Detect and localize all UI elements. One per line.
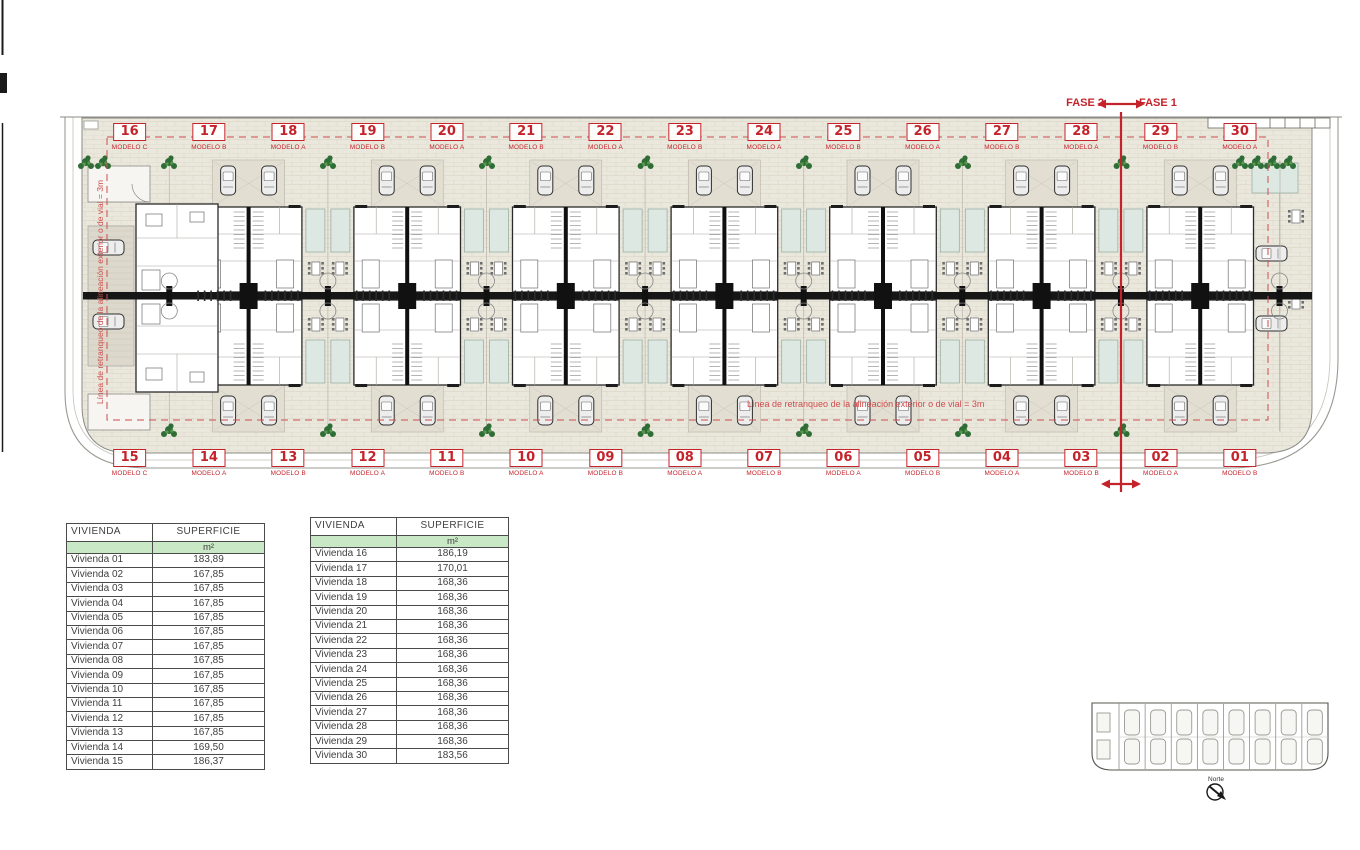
superficie-cell: 167,85 [153, 697, 265, 711]
vivienda-cell: Vivienda 26 [311, 691, 397, 705]
patio-table-icon [942, 262, 958, 275]
superficie-cell: 167,85 [153, 568, 265, 582]
superficie-cell: 167,85 [153, 625, 265, 639]
vivienda-cell: Vivienda 23 [311, 648, 397, 662]
unit-model-label: MODELO B [1143, 144, 1178, 151]
vivienda-cell: Vivienda 14 [67, 741, 153, 755]
vivienda-cell: Vivienda 25 [311, 677, 397, 691]
unit-10-badge: 10MODELO A [509, 448, 544, 477]
table-row: Vivienda 09167,85 [67, 669, 265, 683]
vivienda-cell: Vivienda 29 [311, 735, 397, 749]
vivienda-cell: Vivienda 11 [67, 697, 153, 711]
unit-14-badge: 14MODELO A [191, 448, 226, 477]
vivienda-cell: Vivienda 24 [311, 663, 397, 677]
unit-model-label: MODELO A [1064, 144, 1099, 151]
north-label: Norte [1208, 776, 1224, 783]
vivienda-cell: Vivienda 10 [67, 683, 153, 697]
superficie-cell: 168,36 [397, 605, 509, 619]
unit-model-label: MODELO C [112, 144, 148, 151]
patio-table-icon [625, 262, 641, 275]
superficie-cell: 186,37 [153, 755, 265, 769]
superficie-cell: 167,85 [153, 683, 265, 697]
vivienda-cell: Vivienda 09 [67, 669, 153, 683]
unit-number: 29 [1144, 123, 1177, 141]
table-row: Vivienda 08167,85 [67, 654, 265, 668]
unit-16-badge: 16MODELO C [112, 122, 148, 151]
car-icon [262, 166, 277, 195]
unit-number: 14 [192, 449, 225, 467]
unit-number: 21 [510, 123, 543, 141]
unit-model-label: MODELO A [429, 144, 464, 151]
unit-number: 13 [272, 449, 305, 467]
unit-model-label: MODELO A [905, 144, 940, 151]
vivienda-cell: Vivienda 08 [67, 654, 153, 668]
superficie-cell: 167,85 [153, 640, 265, 654]
unit-24-badge: 24MODELO A [747, 122, 782, 151]
vivienda-cell: Vivienda 22 [311, 634, 397, 648]
superficie-cell: 167,85 [153, 597, 265, 611]
unit-number: 06 [827, 449, 860, 467]
unit-model-label: MODELO A [747, 144, 782, 151]
car-icon [1172, 396, 1187, 425]
unit-model-label: MODELO B [1222, 470, 1257, 477]
vivienda-cell: Vivienda 12 [67, 712, 153, 726]
car-icon [1213, 166, 1228, 195]
unit-model-label: MODELO B [826, 144, 861, 151]
unit-row-m2: m² [397, 536, 509, 548]
setback-line-text-vertical: Línea de retranqueo de la alineación ext… [95, 180, 105, 404]
superficie-cell: 168,36 [397, 706, 509, 720]
unit-number: 12 [351, 449, 384, 467]
car-icon [379, 396, 394, 425]
fase-2-label: FASE 2 [1018, 97, 1104, 109]
unit-28-badge: 28MODELO A [1064, 122, 1099, 151]
superficie-cell: 168,36 [397, 576, 509, 590]
unit-model-label: MODELO A [191, 470, 226, 477]
unit-number: 01 [1223, 449, 1256, 467]
unit-03-badge: 03MODELO B [1064, 448, 1099, 477]
table-row: Vivienda 13167,85 [67, 726, 265, 740]
unit-number: 07 [748, 449, 781, 467]
unit-number: 02 [1144, 449, 1177, 467]
unit-18-badge: 18MODELO A [271, 122, 306, 151]
unit-30-badge: 30MODELO A [1222, 122, 1257, 151]
site-plan-sheet: FASE 2 FASE 1 Línea de retranqueo de la … [0, 0, 1360, 850]
unit-model-label: MODELO A [350, 470, 385, 477]
superficie-cell: 183,56 [397, 749, 509, 763]
table-header-superficie: SUPERFICIE [153, 524, 265, 542]
superficie-cell: 168,36 [397, 677, 509, 691]
table-row: Vivienda 15186,37 [67, 755, 265, 769]
unit-17-badge: 17MODELO B [191, 122, 226, 151]
table-row: Vivienda 07167,85 [67, 640, 265, 654]
unit-29-badge: 29MODELO B [1143, 122, 1178, 151]
page-edge-artifacts [0, 0, 7, 452]
unit-05-badge: 05MODELO B [905, 448, 940, 477]
unit-model-label: MODELO B [1064, 470, 1099, 477]
table-row: Vivienda 25168,36 [311, 677, 509, 691]
vivienda-cell: Vivienda 04 [67, 597, 153, 611]
table-row: Vivienda 21168,36 [311, 619, 509, 633]
unit-number: 22 [589, 123, 622, 141]
vivienda-cell: Vivienda 16 [311, 548, 397, 562]
patio-table-icon [332, 262, 348, 275]
superficie-cell: 167,85 [153, 669, 265, 683]
patio-table-icon [1101, 262, 1117, 275]
table-header-vivienda: VIVIENDA [67, 524, 153, 542]
table-row: Vivienda 03167,85 [67, 582, 265, 596]
vivienda-cell: Vivienda 03 [67, 582, 153, 596]
vivienda-cell: Vivienda 27 [311, 706, 397, 720]
unit-model-label: MODELO A [509, 470, 544, 477]
car-icon [1014, 166, 1029, 195]
unit-08-badge: 08MODELO A [667, 448, 702, 477]
car-icon [696, 166, 711, 195]
car-icon [1213, 396, 1228, 425]
patio-table-icon [1125, 318, 1141, 331]
superficie-cell: 170,01 [397, 562, 509, 576]
unit-15-badge: 15MODELO C [112, 448, 148, 477]
superficie-cell: 168,36 [397, 735, 509, 749]
patio-table-icon [467, 318, 483, 331]
unit-number: 11 [430, 449, 463, 467]
unit-04-badge: 04MODELO A [984, 448, 1019, 477]
patio-table-icon [467, 262, 483, 275]
unit-number: 19 [351, 123, 384, 141]
patio-table-icon [491, 262, 507, 275]
patio-table-icon [308, 262, 324, 275]
unit-model-label: MODELO A [667, 470, 702, 477]
table-row: Vivienda 23168,36 [311, 648, 509, 662]
car-icon [420, 396, 435, 425]
unit-number: 30 [1223, 123, 1256, 141]
table-row: Vivienda 19168,36 [311, 591, 509, 605]
unit-number: 04 [985, 449, 1018, 467]
car-icon [1055, 396, 1070, 425]
car-icon [221, 166, 236, 195]
unit-model-label: MODELO B [667, 144, 702, 151]
unit-model-label: MODELO A [1222, 144, 1257, 151]
table-row: Vivienda 20168,36 [311, 605, 509, 619]
unit-number: 28 [1065, 123, 1098, 141]
vivienda-cell: Vivienda 02 [67, 568, 153, 582]
car-icon [696, 396, 711, 425]
superficie-cell: 167,85 [153, 712, 265, 726]
unit-row-empty [311, 536, 397, 548]
unit-model-label: MODELO A [826, 470, 861, 477]
unit-12-badge: 12MODELO A [350, 448, 385, 477]
unit-23-badge: 23MODELO B [667, 122, 702, 151]
unit-number: 18 [272, 123, 305, 141]
unit-model-label: MODELO B [746, 470, 781, 477]
unit-model-label: MODELO B [350, 144, 385, 151]
table-header-vivienda: VIVIENDA [311, 518, 397, 536]
vivienda-cell: Vivienda 28 [311, 720, 397, 734]
table-row: Vivienda 10167,85 [67, 683, 265, 697]
patio-table-icon [649, 262, 665, 275]
table-row: Vivienda 12167,85 [67, 712, 265, 726]
table-row: Vivienda 24168,36 [311, 663, 509, 677]
patio-table-icon [808, 262, 824, 275]
unit-25-badge: 25MODELO B [826, 122, 861, 151]
patio-table-icon [942, 318, 958, 331]
table-row: Vivienda 05167,85 [67, 611, 265, 625]
site-corner-box [84, 121, 98, 129]
unit-26-badge: 26MODELO A [905, 122, 940, 151]
superficie-cell: 183,89 [153, 554, 265, 568]
table-row: Vivienda 30183,56 [311, 749, 509, 763]
car-icon [1172, 166, 1187, 195]
vivienda-cell: Vivienda 15 [67, 755, 153, 769]
superficie-cell: 186,19 [397, 548, 509, 562]
table-row: Vivienda 02167,85 [67, 568, 265, 582]
table-row: Vivienda 22168,36 [311, 634, 509, 648]
superficie-cell: 169,50 [153, 741, 265, 755]
car-icon [1055, 166, 1070, 195]
table-row: Vivienda 18168,36 [311, 576, 509, 590]
superficie-cell: 168,36 [397, 619, 509, 633]
car-icon [737, 166, 752, 195]
car-icon [538, 396, 553, 425]
vivienda-cell: Vivienda 17 [311, 562, 397, 576]
unit-09-badge: 09MODELO B [588, 448, 623, 477]
patio-table-icon [966, 262, 982, 275]
table-row: Vivienda 26168,36 [311, 691, 509, 705]
unit-number: 20 [430, 123, 463, 141]
unit-21-badge: 21MODELO B [508, 122, 543, 151]
key-plan [1092, 703, 1328, 770]
table-row: Vivienda 29168,36 [311, 735, 509, 749]
patio-table-icon [1288, 210, 1304, 223]
table-header-superficie: SUPERFICIE [397, 518, 509, 536]
patio-table-icon [491, 318, 507, 331]
superficie-cell: 167,85 [153, 726, 265, 740]
car-icon [855, 166, 870, 195]
unit-number: 24 [748, 123, 781, 141]
patio-table-icon [966, 318, 982, 331]
table-row: Vivienda 01183,89 [67, 554, 265, 568]
table-row: Vivienda 04167,85 [67, 597, 265, 611]
superficie-cell: 168,36 [397, 591, 509, 605]
unit-11-badge: 11MODELO B [429, 448, 464, 477]
superficie-cell: 168,36 [397, 691, 509, 705]
unit-model-label: MODELO B [191, 144, 226, 151]
vivienda-cell: Vivienda 21 [311, 619, 397, 633]
surface-table-01-15: VIVIENDASUPERFICIEm²Vivienda 01183,89Viv… [66, 523, 265, 770]
vivienda-cell: Vivienda 30 [311, 749, 397, 763]
unit-model-label: MODELO C [112, 470, 148, 477]
unit-number: 23 [668, 123, 701, 141]
unit-model-label: MODELO B [905, 470, 940, 477]
superficie-cell: 168,36 [397, 634, 509, 648]
superficie-cell: 168,36 [397, 663, 509, 677]
vivienda-cell: Vivienda 01 [67, 554, 153, 568]
vivienda-cell: Vivienda 20 [311, 605, 397, 619]
patio-table-icon [1125, 262, 1141, 275]
unit-number: 05 [906, 449, 939, 467]
surface-table-16-30: VIVIENDASUPERFICIEm²Vivienda 16186,19Viv… [310, 517, 509, 764]
unit-model-label: MODELO B [271, 470, 306, 477]
car-icon [538, 166, 553, 195]
table-row: Vivienda 16186,19 [311, 548, 509, 562]
unit-number: 16 [113, 123, 146, 141]
car-icon [1014, 396, 1029, 425]
unit-number: 08 [668, 449, 701, 467]
car-icon [379, 166, 394, 195]
unit-model-label: MODELO B [429, 470, 464, 477]
unit-row-m2: m² [153, 542, 265, 554]
vivienda-cell: Vivienda 19 [311, 591, 397, 605]
table-row: Vivienda 06167,85 [67, 625, 265, 639]
unit-number: 27 [985, 123, 1018, 141]
patio-table-icon [625, 318, 641, 331]
patio-table-icon [784, 318, 800, 331]
patio-table-icon [332, 318, 348, 331]
unit-model-label: MODELO A [1143, 470, 1178, 477]
table-row: Vivienda 17170,01 [311, 562, 509, 576]
table-row: Vivienda 14169,50 [67, 741, 265, 755]
vivienda-cell: Vivienda 18 [311, 576, 397, 590]
unit-01-badge: 01MODELO B [1222, 448, 1257, 477]
superficie-cell: 168,36 [397, 648, 509, 662]
patio-table-icon [649, 318, 665, 331]
unit-number: 26 [906, 123, 939, 141]
unit-19-badge: 19MODELO B [350, 122, 385, 151]
patio-table-icon [808, 318, 824, 331]
unit-06-badge: 06MODELO A [826, 448, 861, 477]
unit-model-label: MODELO B [588, 470, 623, 477]
unit-number: 03 [1065, 449, 1098, 467]
car-icon [420, 166, 435, 195]
unit-number: 09 [589, 449, 622, 467]
unit-number: 25 [827, 123, 860, 141]
table-row: Vivienda 11167,85 [67, 697, 265, 711]
table-row: Vivienda 27168,36 [311, 706, 509, 720]
unit-model-label: MODELO A [984, 470, 1019, 477]
unit-model-label: MODELO A [271, 144, 306, 151]
unit-number: 15 [113, 449, 146, 467]
patio-table-icon [1101, 318, 1117, 331]
unit-model-label: MODELO B [508, 144, 543, 151]
unit-model-label: MODELO B [984, 144, 1019, 151]
patio-table-icon [308, 318, 324, 331]
unit-20-badge: 20MODELO A [429, 122, 464, 151]
unit-row-empty [67, 542, 153, 554]
superficie-cell: 167,85 [153, 611, 265, 625]
setback-line-text: Línea de retranqueo de la alineación ext… [747, 399, 984, 409]
car-icon [262, 396, 277, 425]
unit-02-badge: 02MODELO A [1143, 448, 1178, 477]
car-icon [221, 396, 236, 425]
unit-27-badge: 27MODELO B [984, 122, 1019, 151]
unit-07-badge: 07MODELO B [746, 448, 781, 477]
vivienda-cell: Vivienda 07 [67, 640, 153, 654]
unit-22-badge: 22MODELO A [588, 122, 623, 151]
superficie-cell: 168,36 [397, 720, 509, 734]
unit-13-badge: 13MODELO B [271, 448, 306, 477]
unit-number: 17 [192, 123, 225, 141]
vivienda-cell: Vivienda 05 [67, 611, 153, 625]
car-icon [896, 166, 911, 195]
unit-model-label: MODELO A [588, 144, 623, 151]
superficie-cell: 167,85 [153, 582, 265, 596]
vivienda-cell: Vivienda 06 [67, 625, 153, 639]
car-icon [579, 166, 594, 195]
patio-table-icon [784, 262, 800, 275]
table-row: Vivienda 28168,36 [311, 720, 509, 734]
car-icon [1256, 246, 1287, 261]
car-icon [579, 396, 594, 425]
vivienda-cell: Vivienda 13 [67, 726, 153, 740]
fase-1-label: FASE 1 [1139, 97, 1177, 109]
superficie-cell: 167,85 [153, 654, 265, 668]
unit-number: 10 [510, 449, 543, 467]
north-compass-icon [1207, 784, 1226, 800]
